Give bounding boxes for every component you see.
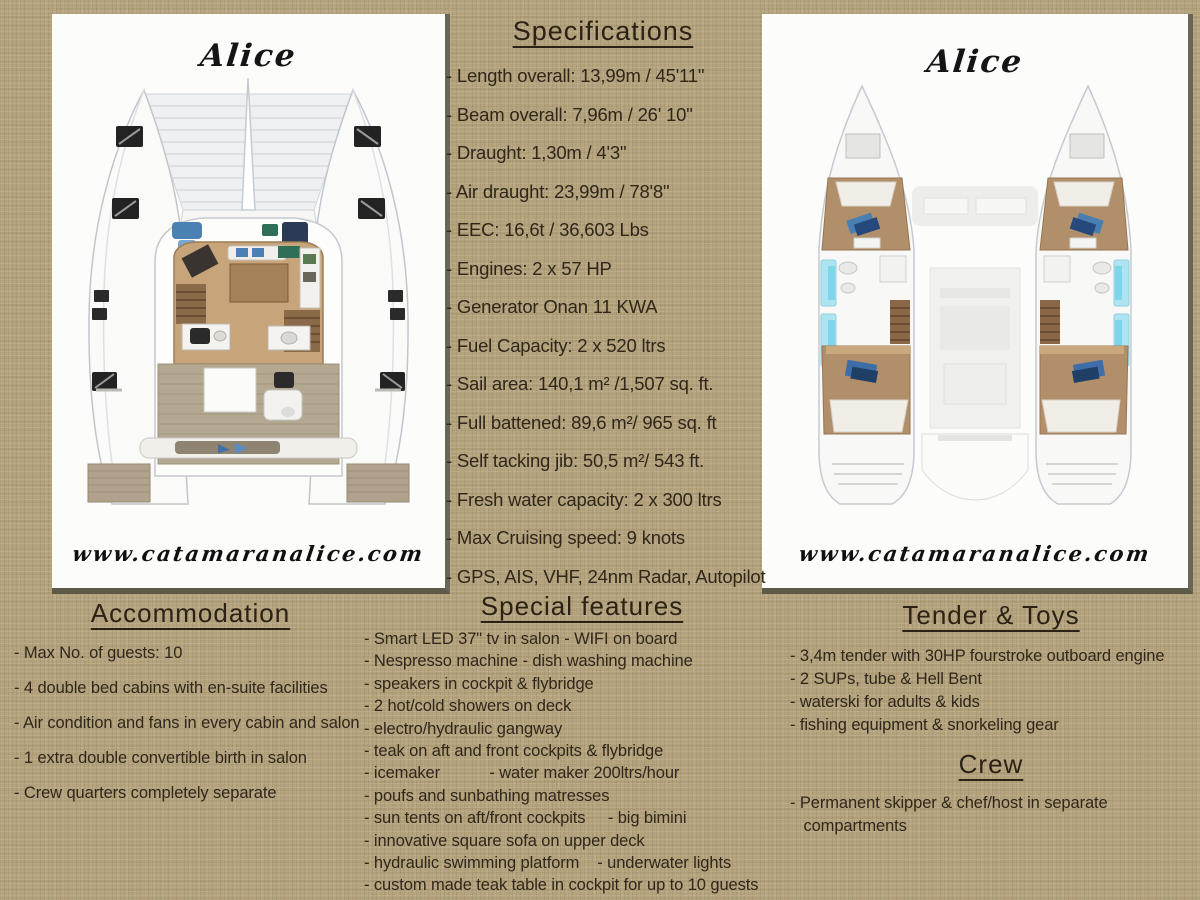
- interior-plan-image: [762, 78, 1188, 524]
- boat-name-left: Alice: [52, 38, 447, 74]
- tender-toys-section: Tender & Toys - 3,4m tender with 30HP fo…: [782, 600, 1200, 838]
- special-feature-item: - innovative square sofa on upper deck: [364, 830, 800, 852]
- spec-item: - Fuel Capacity: 2 x 520 ltrs: [446, 335, 760, 356]
- spec-item: - GPS, AIS, VHF, 24nm Radar, Autopilot: [446, 566, 760, 587]
- accommodation-section: Accommodation - Max No. of guests: 10 - …: [8, 598, 373, 818]
- crew-item: - Permanent skipper & chef/host in separ…: [790, 792, 1200, 838]
- spec-item: - EEC: 16,6t / 36,603 Lbs: [446, 219, 760, 240]
- accommodation-item: - 4 double bed cabins with en-suite faci…: [14, 678, 373, 698]
- accommodation-item: - 1 extra double convertible birth in sa…: [14, 748, 373, 768]
- special-feature-item: - speakers in cockpit & flybridge: [364, 673, 800, 695]
- specifications-title: Specifications: [446, 16, 760, 47]
- helm-seat-blue: [172, 222, 202, 239]
- crew-section: Crew - Permanent skipper & chef/host in …: [782, 749, 1200, 838]
- accommodation-item: - Max No. of guests: 10: [14, 643, 373, 663]
- spec-item: - Generator Onan 11 KWA: [446, 296, 760, 317]
- special-features-section: Special features - Smart LED 37" tv in s…: [364, 591, 800, 897]
- helm-seat-dark: [282, 222, 308, 244]
- tender-item: - waterski for adults & kids: [790, 691, 1200, 714]
- accommodation-item: - Air condition and fans in every cabin …: [14, 713, 373, 733]
- tender-item: - fishing equipment & snorkeling gear: [790, 714, 1200, 737]
- crew-title: Crew: [782, 749, 1200, 780]
- spec-item: - Draught: 1,30m / 4'3": [446, 142, 760, 163]
- accommodation-item: - Crew quarters completely separate: [14, 783, 373, 803]
- tender-item: - 3,4m tender with 30HP fourstroke outbo…: [790, 645, 1200, 668]
- spec-item: - Self tacking jib: 50,5 m²/ 543 ft.: [446, 450, 760, 471]
- special-feature-item: - Nespresso machine - dish washing machi…: [364, 650, 800, 672]
- special-features-title: Special features: [364, 591, 800, 622]
- spec-item: - Beam overall: 7,96m / 26' 10": [446, 104, 760, 125]
- spec-item: - Full battened: 89,6 m²/ 965 sq. ft: [446, 412, 760, 433]
- special-feature-item: - hydraulic swimming platform - underwat…: [364, 852, 800, 874]
- saloon: [174, 242, 323, 364]
- interior-plan-panel: Alice: [762, 14, 1193, 594]
- special-feature-item: - custom made teak table in cockpit for …: [364, 874, 800, 896]
- boat-name-right: Alice: [762, 44, 1190, 80]
- spec-item: - Max Cruising speed: 9 knots: [446, 527, 760, 548]
- special-feature-item: - sun tents on aft/front cockpits - big …: [364, 807, 800, 829]
- deck-plan-panel: Alice: [52, 14, 450, 594]
- special-feature-item: - Smart LED 37" tv in salon - WIFI on bo…: [364, 628, 800, 650]
- accommodation-title: Accommodation: [8, 598, 373, 629]
- special-feature-item: - electro/hydraulic gangway: [364, 718, 800, 740]
- spec-item: - Engines: 2 x 57 HP: [446, 258, 760, 279]
- special-feature-item: - poufs and sunbathing matresses: [364, 785, 800, 807]
- brochure-page: Alice: [0, 0, 1200, 900]
- website-left: www.catamaranalice.com: [52, 541, 447, 566]
- spec-item: - Fresh water capacity: 2 x 300 ltrs: [446, 489, 760, 510]
- bridgedeck-ghost: [912, 186, 1038, 500]
- spec-item: - Length overall: 13,99m / 45'11": [446, 65, 760, 86]
- tender-toys-title: Tender & Toys: [782, 600, 1200, 631]
- website-right: www.catamaranalice.com: [762, 541, 1190, 566]
- special-feature-item: - icemaker - water maker 200ltrs/hour: [364, 762, 800, 784]
- special-feature-item: - 2 hot/cold showers on deck: [364, 695, 800, 717]
- tender-item: - 2 SUPs, tube & Hell Bent: [790, 668, 1200, 691]
- aft-cockpit: [140, 364, 357, 464]
- deck-plan-image: [52, 72, 445, 524]
- port-hull-interior: [819, 86, 914, 504]
- spec-item: - Sail area: 140,1 m² /1,507 sq. ft.: [446, 373, 760, 394]
- special-feature-item: - teak on aft and front cockpits & flybr…: [364, 740, 800, 762]
- spec-item: - Air draught: 23,99m / 78'8": [446, 181, 760, 202]
- specifications-section: Specifications - Length overall: 13,99m …: [446, 16, 760, 604]
